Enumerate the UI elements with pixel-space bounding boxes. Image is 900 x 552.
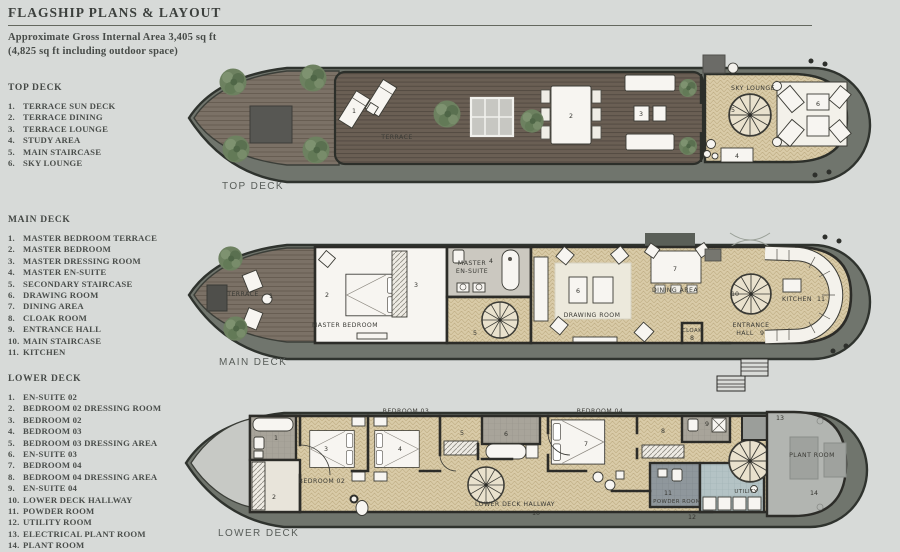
legend-item: 2.TERRACE DINING <box>8 112 204 123</box>
legend-item: 5.MAIN STAIRCASE <box>8 147 204 158</box>
utility-label: UTILITY <box>734 489 757 495</box>
drawing-room-label: DRAWING ROOM <box>564 312 621 319</box>
dressing-03 <box>444 441 478 455</box>
marker-3: 3 <box>414 282 418 289</box>
dining-area-label: DINING AREA <box>652 287 698 294</box>
cloak-label: CLOAK <box>682 328 702 334</box>
legend-item: 3.TERRACE LOUNGE <box>8 124 204 135</box>
legend-item: 7.DINING AREA <box>8 301 204 312</box>
legend-item: 4.BEDROOM 03 <box>8 426 204 437</box>
legend-item: 2.MASTER BEDROOM <box>8 244 204 255</box>
legend-item: 1.TERRACE SUN DECK <box>8 101 204 112</box>
legend-lower-list: 1.EN-SUITE 02 2.BEDROOM 02 DRESSING ROOM… <box>8 392 204 552</box>
flagship-plans-page: { "header": { "title": "FLAGSHIP PLANS &… <box>0 0 900 551</box>
marker-9: 9 <box>760 330 764 337</box>
marker-3: 3 <box>324 446 328 453</box>
marker-12: 12 <box>688 514 696 521</box>
legend-item: 5.BEDROOM 03 DRESSING AREA <box>8 438 204 449</box>
legend-item: 1.MASTER BEDROOM TERRACE <box>8 233 204 244</box>
marker-4: 4 <box>398 446 402 453</box>
legend-main-heading: MAIN DECK <box>8 215 204 225</box>
legend-item: 7.BEDROOM 04 <box>8 460 204 471</box>
legend-item: 4.STUDY AREA <box>8 135 204 146</box>
dressing-02 <box>250 460 300 512</box>
bedroom02-label: BEDROOM 02 <box>299 478 346 485</box>
legend-item: 13.ELECTRICAL PLANT ROOM <box>8 529 204 540</box>
marker-10: 10 <box>731 291 739 298</box>
staircase-spiral <box>729 440 771 482</box>
legend-item: 10.MAIN STAIRCASE <box>8 336 204 347</box>
legend-item: 6.SKY LOUNGE <box>8 158 204 169</box>
legend-item: 1.EN-SUITE 02 <box>8 392 204 403</box>
legend-item: 3.BEDROOM 02 <box>8 415 204 426</box>
sky-lounge-sofa <box>773 82 852 147</box>
legend-item: 2.BEDROOM 02 DRESSING ROOM <box>8 403 204 414</box>
marker-6: 6 <box>576 288 580 295</box>
legend-main-deck: MAIN DECK 1.MASTER BEDROOM TERRACE 2.MAS… <box>8 215 204 358</box>
funnel-block <box>703 55 725 73</box>
marker-13: 13 <box>776 415 784 422</box>
console <box>705 249 721 261</box>
legend-top-list: 1.TERRACE SUN DECK 2.TERRACE DINING 3.TE… <box>8 101 204 169</box>
marker-3: 3 <box>639 111 643 118</box>
staircase-spiral <box>468 467 504 503</box>
marker-2: 2 <box>272 494 276 501</box>
master-bedroom-label: MASTER BEDROOM <box>312 322 378 329</box>
legend-lower-heading: LOWER DECK <box>8 374 204 384</box>
ensuite-label: EN-SUITE <box>456 268 488 275</box>
legend-item: 14.PLANT ROOM <box>8 540 204 551</box>
master-bed <box>346 274 396 316</box>
terrace-label: TERRACE <box>380 134 413 141</box>
marker-11: 11 <box>817 296 825 303</box>
marker-1: 1 <box>352 108 356 115</box>
area-line-1: Approximate Gross Internal Area 3,405 sq… <box>8 31 216 45</box>
legend-lower-deck: LOWER DECK 1.EN-SUITE 02 2.BEDROOM 02 DR… <box>8 374 204 552</box>
marker-7: 7 <box>673 266 677 273</box>
bedroom03-label: BEDROOM 03 <box>383 408 430 415</box>
legend-item: 6.DRAWING ROOM <box>8 290 204 301</box>
powder-label: POWDER ROOM <box>653 499 701 505</box>
entrance-label: ENTRANCE <box>732 322 769 329</box>
bedroom04-label: BEDROOM 04 <box>577 408 624 415</box>
legend-main-list: 1.MASTER BEDROOM TERRACE 2.MASTER BEDROO… <box>8 233 204 358</box>
marker-6: 6 <box>816 101 820 108</box>
legend-item: 11.POWDER ROOM <box>8 506 204 517</box>
top-deck-caption: TOP DECK <box>222 181 284 192</box>
hall-label: HALL <box>736 330 754 337</box>
ensuite-04 <box>682 416 730 442</box>
marker-9: 9 <box>705 421 709 428</box>
legend-top-deck: TOP DECK 1.TERRACE SUN DECK 2.TERRACE DI… <box>8 83 204 169</box>
marker-5: 5 <box>731 107 735 114</box>
plant-room <box>767 412 846 516</box>
page-title: FLAGSHIP PLANS & LAYOUT <box>8 5 221 21</box>
marker-8: 8 <box>690 335 694 342</box>
legend-item: 9.ENTRANCE HALL <box>8 324 204 335</box>
entrance-steps <box>717 359 768 391</box>
title-divider <box>8 25 812 26</box>
marker-7: 7 <box>584 441 588 448</box>
marker-5: 5 <box>473 330 477 337</box>
marker-4: 4 <box>489 258 493 265</box>
marker-14: 14 <box>810 490 818 497</box>
marker-2: 2 <box>325 292 329 299</box>
lower-deck-caption: LOWER DECK <box>218 528 299 539</box>
top-deck-plan: TERRACE SKY LOUNGE 1 2 3 4 5 6 <box>185 48 885 188</box>
terrace-label: TERRACE <box>226 291 259 298</box>
legend-item: 8.CLOAK ROOM <box>8 313 204 324</box>
main-deck-plan: TERRACE MASTER BEDROOM MASTER EN-SUITE D… <box>185 223 885 395</box>
legend-item: 9.EN-SUITE 04 <box>8 483 204 494</box>
legend-top-heading: TOP DECK <box>8 83 204 93</box>
sky-lounge-label: SKY LOUNGE <box>731 85 775 92</box>
marker-5: 5 <box>460 430 464 437</box>
kitchen-label: KITCHEN <box>782 296 812 303</box>
legend-item: 8.BEDROOM 04 DRESSING AREA <box>8 472 204 483</box>
main-deck-caption: MAIN DECK <box>219 357 287 368</box>
marker-2: 2 <box>569 113 573 120</box>
marker-11: 11 <box>664 490 672 497</box>
legend-item: 5.SECONDARY STAIRCASE <box>8 279 204 290</box>
hallway-label: LOWER DECK HALLWAY <box>475 501 555 508</box>
electrical-plant-room <box>742 416 767 440</box>
secondary-staircase-spiral <box>482 302 518 338</box>
marker-1: 1 <box>269 293 273 300</box>
marker-6: 6 <box>504 431 508 438</box>
marker-1: 1 <box>274 435 278 442</box>
plant-label: PLANT ROOM <box>789 452 835 459</box>
marker-4: 4 <box>735 153 739 160</box>
master-label: MASTER <box>458 260 486 267</box>
lower-deck-plan: BEDROOM 02 BEDROOM 03 BEDROOM 04 LOWER D… <box>182 393 882 535</box>
wardrobe <box>392 251 407 317</box>
dressing-04 <box>642 445 684 458</box>
legend-item: 6.EN-SUITE 03 <box>8 449 204 460</box>
marker-8: 8 <box>661 428 665 435</box>
legend-item: 3.MASTER DRESSING ROOM <box>8 256 204 267</box>
marker-10: 10 <box>532 510 540 517</box>
ensuite-03 <box>482 416 540 459</box>
legend-item: 10.LOWER DECK HALLWAY <box>8 495 204 506</box>
legend-item: 11.KITCHEN <box>8 347 204 358</box>
main-staircase-spiral <box>729 94 771 136</box>
legend-item: 4.MASTER EN-SUITE <box>8 267 204 278</box>
legend-item: 12.UTILITY ROOM <box>8 517 204 528</box>
